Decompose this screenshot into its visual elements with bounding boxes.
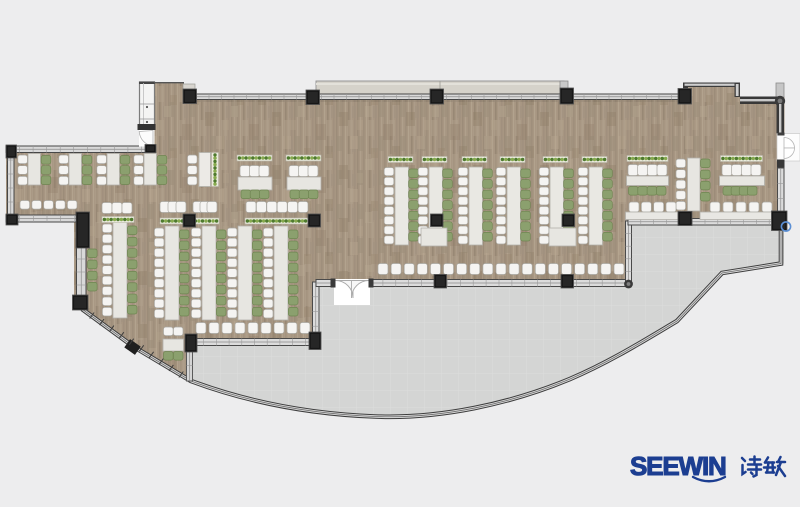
svg-text:SEEWIN: SEEWIN — [630, 451, 727, 481]
